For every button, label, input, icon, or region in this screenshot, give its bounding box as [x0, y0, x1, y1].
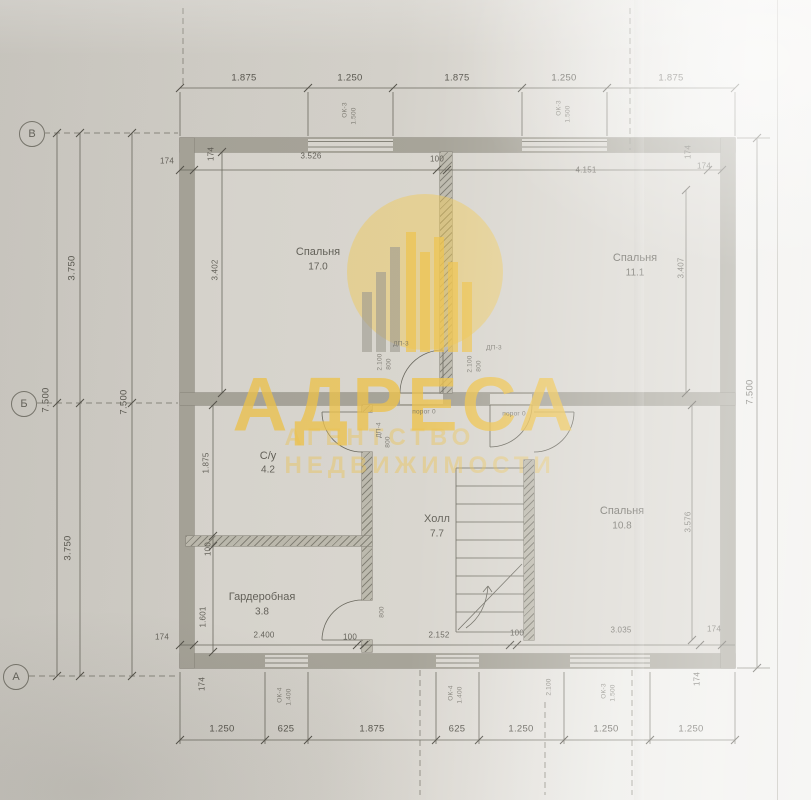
dim-label: 3.576 — [684, 511, 693, 532]
room-area: 7.7 — [430, 529, 444, 540]
dim-label: 1.250 — [551, 73, 576, 84]
door-mark: 2.100 — [546, 678, 553, 695]
window-mark: 1.500 — [351, 107, 358, 124]
window-mark: 1.400 — [286, 688, 293, 705]
dim-label: 100 — [510, 629, 524, 638]
door-mark: 800 — [476, 360, 483, 371]
window-mark: 1.500 — [565, 105, 572, 122]
dim-label: 174 — [155, 633, 169, 642]
dim-label: 1.250 — [678, 724, 703, 735]
room-label: Спальня — [296, 246, 340, 258]
threshold-mark: порог 0 — [502, 411, 526, 418]
room-label: Спальня — [600, 505, 644, 517]
dim-label: 1.875 — [202, 452, 211, 473]
dim-label: 100 — [343, 633, 357, 642]
dim-label: 3.750 — [67, 255, 78, 280]
door-mark: 2.100 — [377, 353, 384, 370]
window-mark: 1.400 — [457, 686, 464, 703]
dim-label: 1.250 — [593, 724, 618, 735]
dim-label: 174 — [697, 162, 711, 171]
door-mark: ДП-4 — [376, 422, 383, 438]
dim-label: 1.875 — [231, 73, 256, 84]
door-mark: 2.100 — [467, 355, 474, 372]
window-mark: ОК-4 — [277, 687, 284, 702]
door-mark: 800 — [386, 358, 393, 369]
room-area: 3.8 — [255, 607, 269, 618]
dim-label: 1.875 — [658, 73, 683, 84]
window-mark: ОК-3 — [342, 102, 349, 117]
dim-label: 1.250 — [337, 73, 362, 84]
dim-label: 174 — [707, 625, 721, 634]
dim-label: 3.750 — [63, 535, 74, 560]
dim-label: 625 — [449, 724, 466, 735]
dim-label: 1.250 — [508, 724, 533, 735]
door-mark: ДП-3 — [486, 345, 502, 352]
dim-label: 3.407 — [677, 257, 686, 278]
dim-label: 174 — [160, 157, 174, 166]
door-mark: ДП-3 — [393, 341, 409, 348]
labels-layer: Спальня 17.0 Спальня 11.1 С/у 4.2 Холл 7… — [0, 0, 811, 800]
dim-label: 2.152 — [428, 631, 449, 640]
dim-label: 100 — [430, 155, 444, 164]
dim-label: 1.875 — [444, 73, 469, 84]
room-area: 4.2 — [261, 465, 275, 476]
dim-label: 7.500 — [41, 387, 52, 412]
floor-plan-photo: АДРЕСА АГЕНТСТВО НЕДВИЖИМОСТИ — [0, 0, 811, 800]
dim-label: 1.875 — [359, 724, 384, 735]
window-mark: ОК-4 — [448, 685, 455, 700]
dim-label: 3.526 — [300, 152, 321, 161]
dim-label: 1.601 — [199, 606, 208, 627]
room-label: С/у — [260, 450, 277, 462]
door-mark: 800 — [379, 606, 386, 617]
dim-label: 7.500 — [745, 379, 756, 404]
dim-label: 174 — [693, 672, 702, 686]
dim-label: 100 — [204, 542, 213, 556]
room-area: 17.0 — [308, 262, 327, 273]
room-label: Спальня — [613, 252, 657, 264]
room-area: 10.8 — [612, 521, 631, 532]
dim-label: 174 — [198, 677, 207, 691]
dim-label: 174 — [684, 145, 693, 159]
dim-label: 2.400 — [253, 631, 274, 640]
threshold-mark: порог 0 — [412, 409, 436, 416]
dim-label: 3.035 — [610, 626, 631, 635]
dim-label: 4.151 — [575, 166, 596, 175]
dim-label: 625 — [278, 724, 295, 735]
door-mark: 800 — [385, 436, 392, 447]
room-label: Гардеробная — [229, 591, 296, 603]
dim-label: 174 — [207, 147, 216, 161]
room-label: Холл — [424, 513, 450, 525]
window-mark: ОК-3 — [601, 683, 608, 698]
dim-label: 7.500 — [119, 389, 130, 414]
dim-label: 3.402 — [211, 259, 220, 280]
window-mark: ОК-3 — [556, 100, 563, 115]
room-area: 11.1 — [626, 268, 645, 279]
window-mark: 1.500 — [610, 684, 617, 701]
dim-label: 1.250 — [209, 724, 234, 735]
